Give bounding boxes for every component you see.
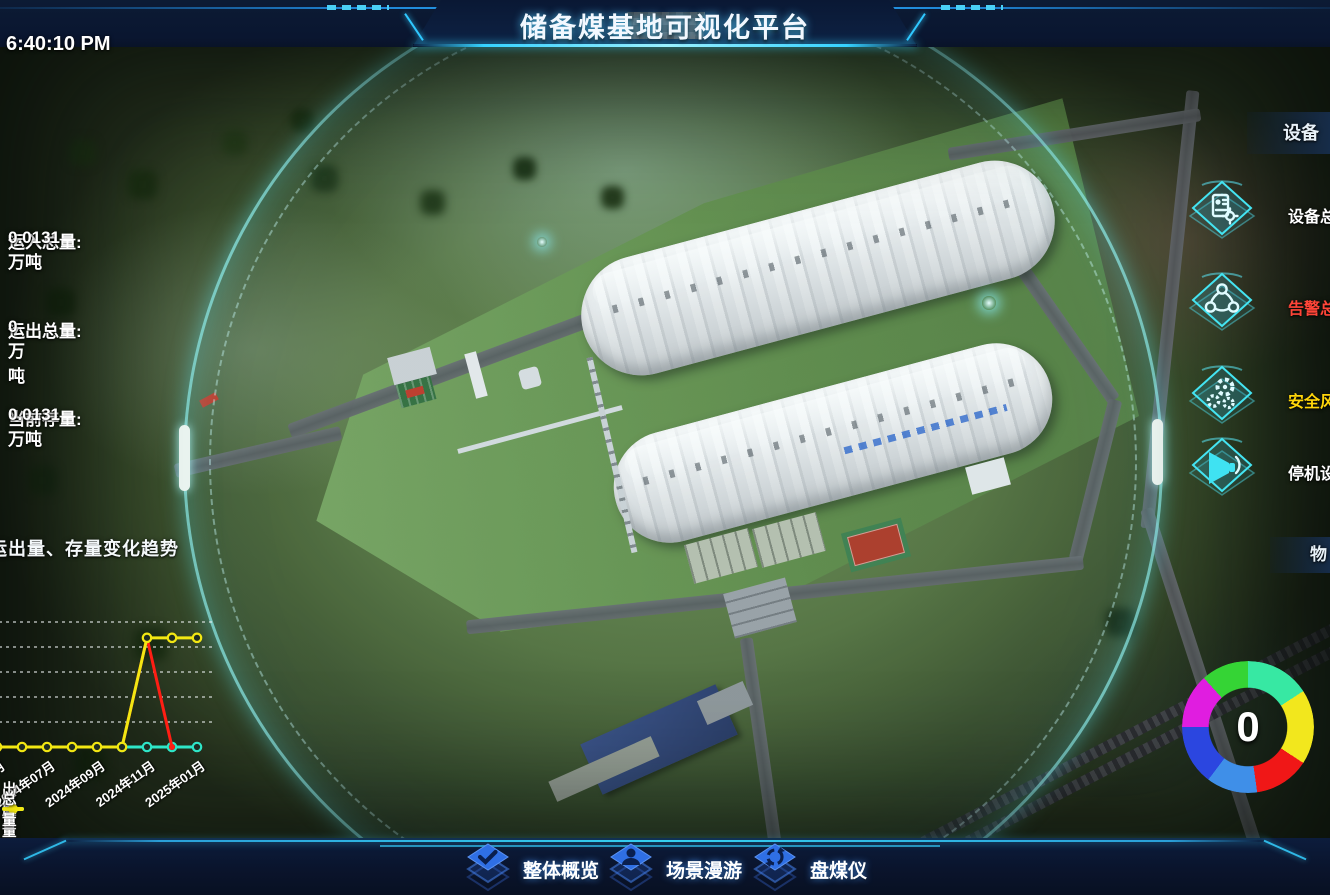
stat-value: 0.0131万吨 [8, 405, 60, 450]
trend-chart-title: 运出量、存量变化趋势 [0, 535, 179, 561]
shutdown-device-item[interactable]: 停机设 [1184, 427, 1330, 513]
coal-inventory-icon [752, 842, 798, 894]
page-title: 储备煤基地可视化平台 [520, 6, 810, 45]
nav-coal-inventory[interactable]: 盘煤仪 [752, 840, 882, 895]
shutdown-device-label: 停机设 [1288, 460, 1330, 484]
trend-line-chart: 2024年05月2024年07月2024年09月2024年11月2025年01月 [0, 598, 218, 803]
overview-check-icon [465, 842, 511, 894]
header-dashes-left [327, 5, 389, 10]
device-total-item[interactable]: 设备总 [1184, 170, 1330, 256]
device-roster-icon [1184, 170, 1260, 246]
stat-value: 0万吨 [8, 317, 25, 387]
shutdown-megaphone-icon [1184, 427, 1260, 503]
alarm-total-item[interactable]: 告警总 [1184, 262, 1330, 348]
stat-value: 0.0131万吨 [8, 228, 60, 273]
dashboard-root: 储备煤基地可视化平台 6:40:10 PM 运入总量: 0.0131万吨 运出总… [0, 0, 1330, 895]
scene-roam-person-icon [608, 842, 654, 894]
header-dashes-right [941, 5, 1003, 10]
clock: 6:40:10 PM [6, 33, 111, 56]
alarm-total-label: 告警总 [1288, 295, 1330, 319]
device-total-label: 设备总 [1288, 203, 1330, 227]
nav-label: 场景漫游 [666, 856, 742, 883]
nav-scene-roam[interactable]: 场景漫游 [608, 840, 758, 895]
alarm-network-icon [1184, 262, 1260, 338]
nav-label: 整体概览 [523, 856, 599, 883]
safety-risk-label: 安全风 [1288, 388, 1330, 412]
nav-overall-overview[interactable]: 整体概览 [465, 840, 615, 895]
donut-center-value: 0 [1182, 661, 1314, 793]
device-section-header[interactable]: 设备 [1247, 112, 1330, 154]
logistics-section-header[interactable]: 物 [1270, 537, 1330, 573]
legend-label: 总量 [2, 788, 17, 830]
nav-label: 盘煤仪 [810, 856, 867, 883]
safety-gears-icon [1184, 355, 1260, 431]
status-donut-chart: 0 [1182, 661, 1314, 793]
